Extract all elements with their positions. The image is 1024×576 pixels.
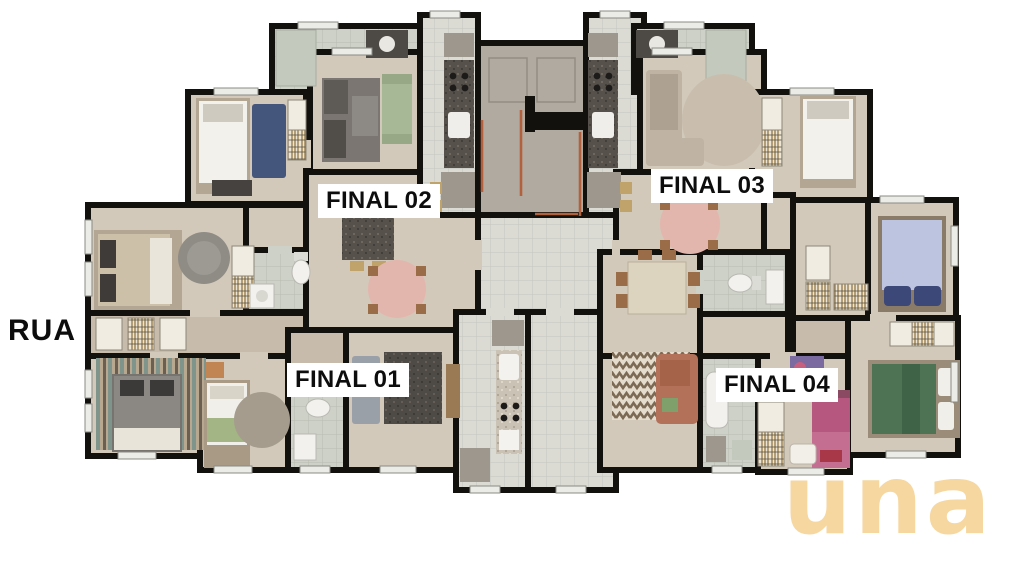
fridge <box>492 320 524 346</box>
green-sofa <box>382 74 412 144</box>
single-bed <box>196 98 250 194</box>
appliance <box>441 172 475 208</box>
blue-bed <box>878 216 946 312</box>
dishwasher <box>499 430 519 450</box>
green-pillow <box>662 398 678 412</box>
fridge <box>588 33 618 57</box>
sink <box>592 112 614 138</box>
sink <box>499 354 519 380</box>
green-bed <box>868 360 960 438</box>
unit-label-final-04: FINAL 04 <box>716 368 838 402</box>
wardrobe-clothes <box>758 432 784 466</box>
bed-bench <box>212 180 252 196</box>
room-corridor-01 <box>246 205 312 250</box>
double-bed-gray <box>112 374 182 452</box>
round-rug-tan <box>234 392 290 448</box>
round-rug-pink <box>660 194 720 254</box>
home-office-units <box>322 78 380 162</box>
street-label: RUA <box>8 314 76 348</box>
wardrobe <box>762 98 782 130</box>
appliance <box>587 172 621 208</box>
wardrobe-clothes <box>762 130 782 166</box>
wardrobe <box>758 402 784 432</box>
wardrobe <box>288 100 306 130</box>
shelf <box>206 362 224 378</box>
terracotta-sofa <box>656 354 698 424</box>
unit-label-final-02: FINAL 02 <box>318 184 440 218</box>
room-lobby <box>478 215 616 312</box>
unit-label-final-03: FINAL 03 <box>651 169 773 203</box>
room-landing-04 <box>700 314 788 356</box>
wardrobe-clothes <box>288 130 306 160</box>
fridge <box>444 33 474 57</box>
single-bed <box>800 96 856 188</box>
blue-rug <box>252 104 286 178</box>
appliance <box>460 448 490 482</box>
unit-label-final-01: FINAL 01 <box>287 363 409 397</box>
round-rug-pink <box>368 260 426 318</box>
floor-plan-canvas: FINAL 01 FINAL 02 FINAL 03 FINAL 04 RUA … <box>0 0 1024 576</box>
sink <box>448 112 470 138</box>
hall-closets <box>96 318 186 350</box>
room-hallway-04 <box>793 318 848 356</box>
brand-logo: una <box>783 452 993 548</box>
double-bed-beige <box>94 230 182 310</box>
shower <box>276 30 316 86</box>
wardrobe <box>232 246 254 276</box>
closet-row <box>890 322 954 346</box>
tv-console <box>446 364 460 418</box>
